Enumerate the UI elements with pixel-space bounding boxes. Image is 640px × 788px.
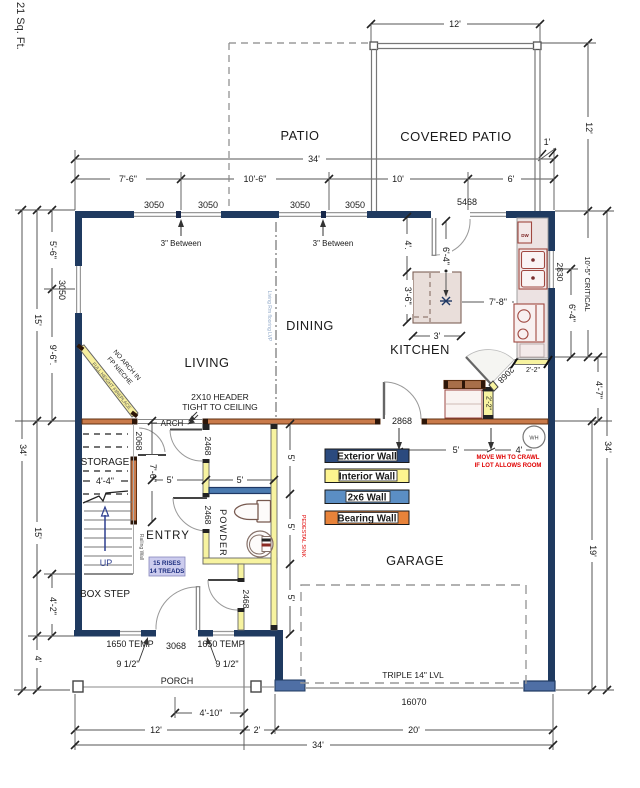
svg-text:DW: DW [521,233,529,238]
svg-text:2X10 HEADER: 2X10 HEADER [191,392,249,402]
svg-text:7'-8": 7'-8" [489,297,507,307]
svg-text:IF LOT ALLOWS ROOM: IF LOT ALLOWS ROOM [475,463,542,469]
svg-text:34': 34' [18,444,28,456]
svg-text:BOX STEP: BOX STEP [80,589,130,600]
svg-text:STORAGE: STORAGE [81,457,130,468]
svg-text:POWDER: POWDER [218,509,228,557]
svg-text:6'-4": 6'-4" [441,247,451,265]
svg-text:PATIO: PATIO [281,128,320,143]
svg-text:7'-6": 7'-6" [119,174,137,184]
svg-text:Living Rm flooring LVP: Living Rm flooring LVP [266,291,272,342]
svg-text:2068: 2068 [134,432,144,451]
svg-text:COVERED PATIO: COVERED PATIO [400,129,511,144]
svg-text:3068: 3068 [166,641,186,651]
svg-text:3050: 3050 [198,200,218,210]
svg-text:2468: 2468 [241,590,251,609]
svg-text:ENTRY: ENTRY [146,530,190,542]
svg-text:4'-10": 4'-10" [200,708,223,718]
svg-text:3" Between: 3" Between [313,239,354,248]
svg-text:3050: 3050 [144,200,164,210]
svg-text:15': 15' [33,314,43,326]
svg-text:5': 5' [237,475,244,485]
svg-text:TRIPLE 14" LVL: TRIPLE 14" LVL [382,670,444,680]
svg-text:5': 5' [286,524,296,531]
svg-text:4': 4' [33,656,43,663]
svg-text:3" Between: 3" Between [161,239,202,248]
svg-text:2'-2": 2'-2" [485,396,492,410]
svg-text:15': 15' [33,527,43,539]
svg-text:16070: 16070 [401,697,426,707]
svg-text:KITCHEN: KITCHEN [390,342,450,357]
svg-text:9 1/2": 9 1/2" [116,659,139,669]
svg-text:3': 3' [434,331,441,341]
svg-text:LIVING: LIVING [185,355,230,370]
svg-text:34': 34' [603,441,613,453]
svg-text:2': 2' [254,725,261,735]
svg-text:Interior Wall: Interior Wall [339,472,396,483]
svg-text:PEDESTAL SINK: PEDESTAL SINK [300,515,306,558]
svg-text:PORCH: PORCH [161,676,194,686]
svg-text:15 RISES: 15 RISES [153,560,181,567]
svg-text:5': 5' [167,475,174,485]
svg-text:Bearing Wall: Bearing Wall [338,514,397,525]
svg-text:10'-6": 10'-6" [244,174,267,184]
svg-text:5'-6": 5'-6" [48,241,58,259]
svg-text:2468: 2468 [203,506,213,525]
svg-text:34': 34' [312,740,324,750]
svg-text:WH: WH [529,436,538,442]
svg-text:6': 6' [508,174,515,184]
svg-text:1650 TEMP: 1650 TEMP [197,639,244,649]
svg-text:14 TREADS: 14 TREADS [150,568,185,575]
svg-text:3050: 3050 [57,280,67,300]
svg-text:1': 1' [544,137,551,147]
svg-text:6'-4": 6'-4" [567,304,577,322]
svg-text:34': 34' [308,154,320,164]
svg-text:4'-4": 4'-4" [96,476,114,486]
svg-text:Exterior Wall: Exterior Wall [337,452,397,463]
svg-text:UP: UP [100,558,113,568]
svg-text:ARCH: ARCH [161,419,184,428]
svg-text:9 1/2": 9 1/2" [215,659,238,669]
svg-text:10'-5" CRITICAL: 10'-5" CRITICAL [583,256,592,311]
svg-text:4'.: 4'. [403,240,413,249]
svg-text:2868: 2868 [392,416,412,426]
svg-text:5': 5' [286,455,296,462]
svg-text:4'-2": 4'-2" [48,597,58,615]
svg-text:21 Sq. Ft.: 21 Sq. Ft. [14,2,26,50]
svg-text:MOVE WH TO CRAWL: MOVE WH TO CRAWL [477,455,540,461]
svg-text:TIGHT TO CEILING: TIGHT TO CEILING [182,402,258,412]
svg-text:2x6 Wall: 2x6 Wall [348,493,387,504]
svg-text:10': 10' [392,174,404,184]
svg-text:3050: 3050 [290,200,310,210]
svg-text:2830: 2830 [555,263,565,282]
svg-text:2468: 2468 [203,437,213,456]
svg-text:12': 12' [150,725,162,735]
svg-text:12': 12' [449,19,461,29]
svg-text:20': 20' [408,725,420,735]
svg-text:3050: 3050 [345,200,365,210]
svg-text:Railing Wall: Railing Wall [138,534,144,560]
svg-text:DINING: DINING [286,318,334,333]
svg-text:19': 19' [588,545,598,557]
svg-text:12': 12' [584,122,594,134]
svg-text:GARAGE: GARAGE [386,553,444,568]
svg-text:5': 5' [286,595,296,602]
svg-text:4': 4' [516,445,523,455]
svg-text:4'-7": 4'-7" [594,381,604,399]
svg-text:2'-2": 2'-2" [526,367,540,374]
svg-text:5': 5' [453,445,460,455]
svg-text:5468: 5468 [457,197,477,207]
svg-text:9'-6".: 9'-6". [48,345,58,365]
svg-text:3'-6".: 3'-6". [403,287,413,307]
